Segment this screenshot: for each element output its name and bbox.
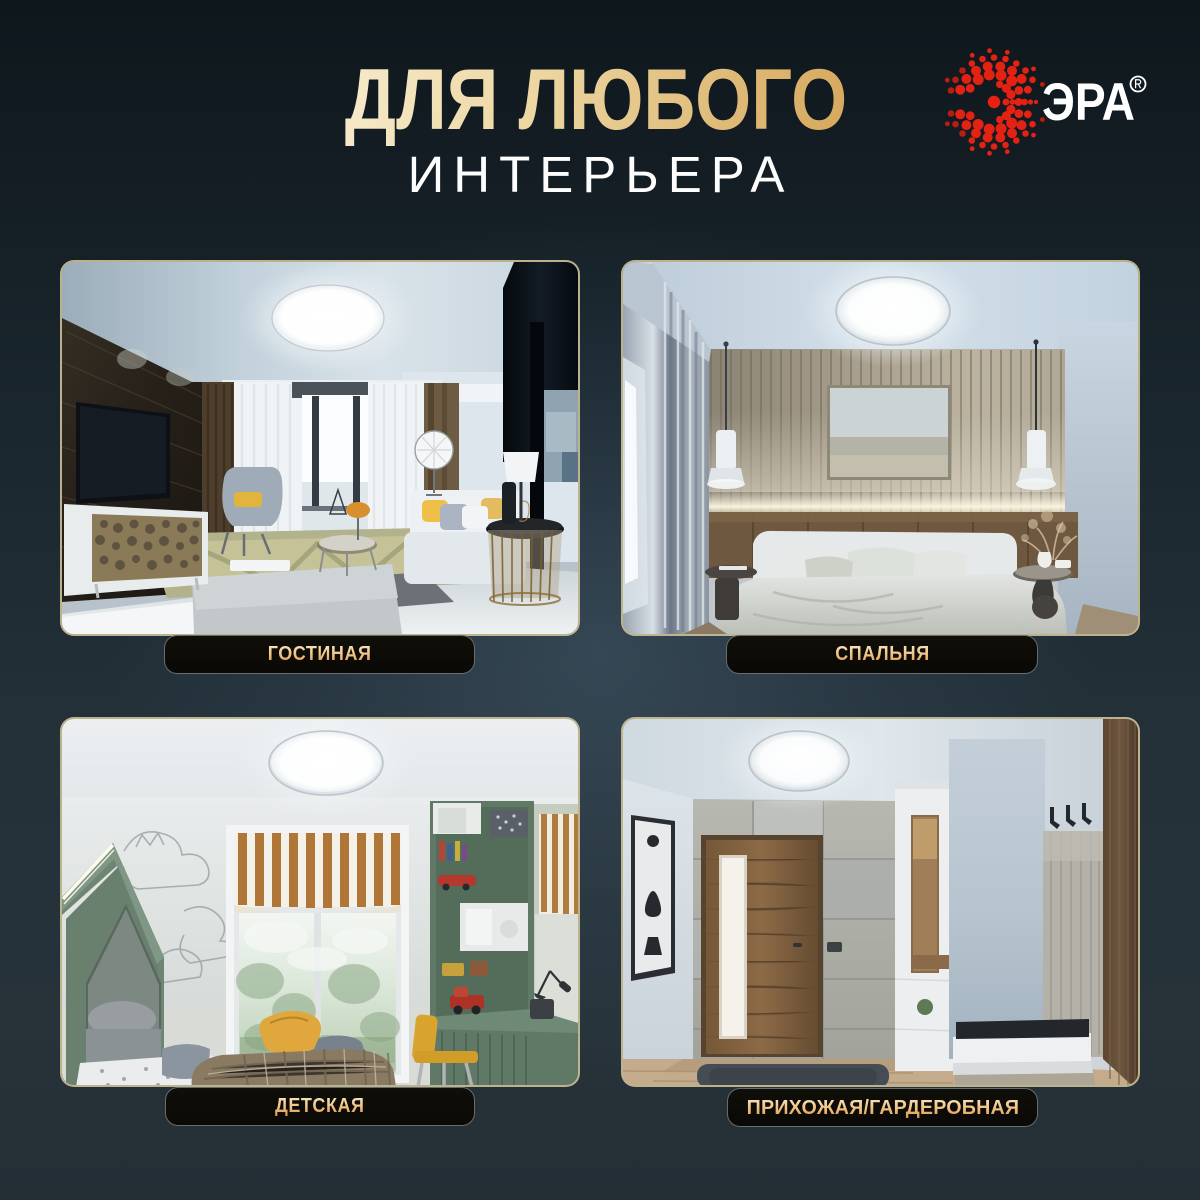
svg-text:ЭРА: ЭРА bbox=[1042, 73, 1135, 132]
